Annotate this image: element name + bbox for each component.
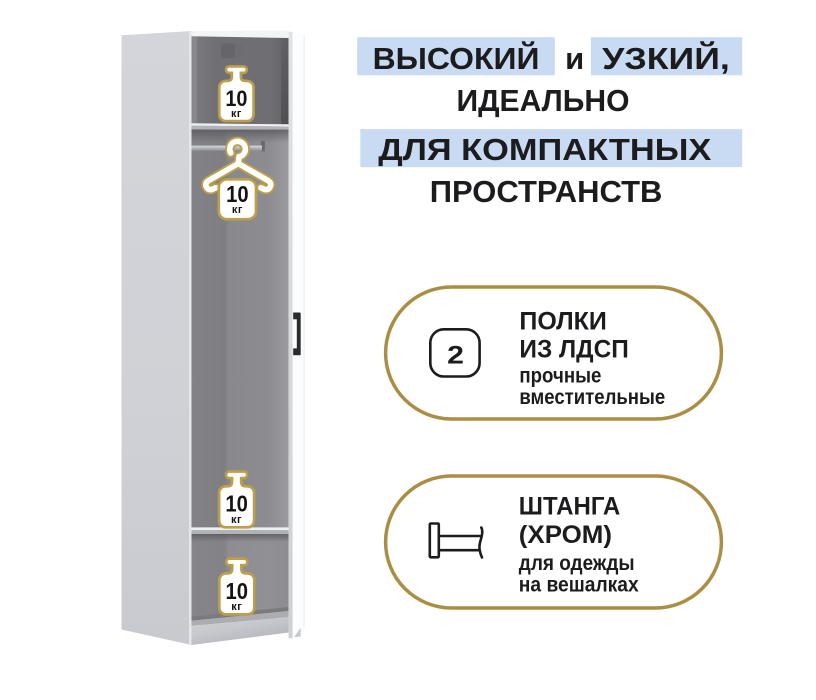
svg-text:2: 2 <box>447 341 464 369</box>
svg-text:ДЛЯ КОМПАКТНЫХ: ДЛЯ КОМПАКТНЫХ <box>378 132 711 167</box>
svg-text:ИДЕАЛЬНО: ИДЕАЛЬНО <box>457 83 630 118</box>
svg-text:кг: кг <box>232 204 243 216</box>
svg-text:10: 10 <box>226 181 249 207</box>
svg-text:УЗКИЙ,: УЗКИЙ, <box>602 40 730 76</box>
svg-text:кг: кг <box>231 514 242 526</box>
svg-text:10: 10 <box>226 578 249 604</box>
svg-text:ШТАНГА: ШТАНГА <box>519 492 621 520</box>
svg-text:10: 10 <box>225 491 248 517</box>
svg-text:для одежды: для одежды <box>519 552 635 575</box>
svg-text:кг: кг <box>231 601 242 613</box>
svg-text:ВЫСОКИЙ: ВЫСОКИЙ <box>373 40 540 76</box>
svg-text:и: и <box>565 41 584 76</box>
svg-text:вместительные: вместительные <box>519 386 665 409</box>
svg-text:прочные: прочные <box>519 365 601 388</box>
svg-text:ПОЛКИ: ПОЛКИ <box>519 307 607 335</box>
svg-text:(ХРОМ): (ХРОМ) <box>519 521 612 549</box>
svg-text:ПРОСТРАНСТВ: ПРОСТРАНСТВ <box>430 174 663 209</box>
svg-text:ИЗ ЛДСП: ИЗ ЛДСП <box>519 336 628 364</box>
svg-text:кг: кг <box>231 108 242 120</box>
svg-text:на вешалках: на вешалках <box>519 573 639 596</box>
